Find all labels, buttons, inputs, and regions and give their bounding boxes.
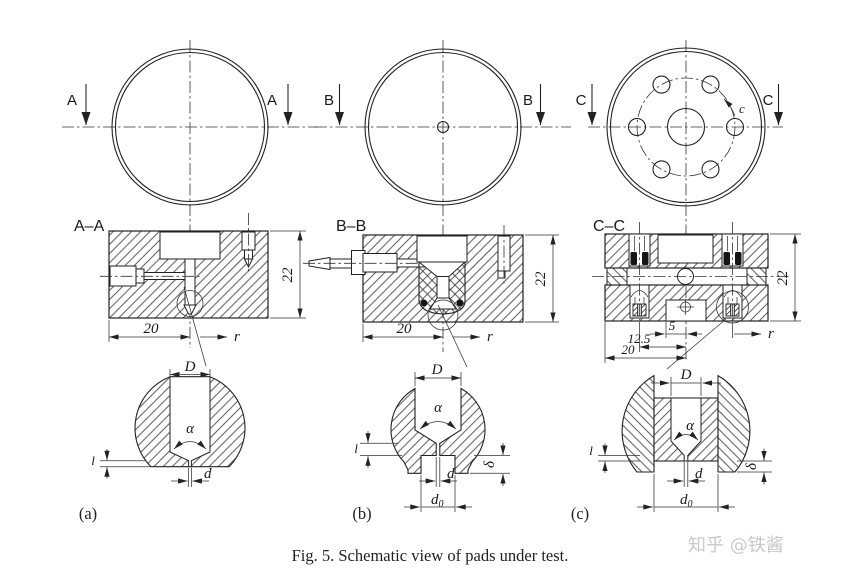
figure-schematic-pads: A A B B c C C A–A [0, 0, 842, 576]
section-marker-label: B [523, 92, 533, 109]
section-marker-b-left: B [324, 84, 340, 125]
section-marker-c-left: C [576, 84, 592, 125]
radial-label: r [768, 326, 774, 342]
section-title: A–A [74, 218, 105, 235]
dimension-D-c: D [651, 367, 721, 396]
dim-hole: d [695, 466, 703, 482]
radial-axis-c: r [733, 322, 775, 342]
dim-bore: D [184, 359, 196, 375]
top-pocket [160, 232, 220, 259]
subfigure-label: (a) [79, 504, 97, 523]
dim-width: 20 [622, 342, 636, 357]
dimension-D-b: D [415, 362, 461, 386]
subfigure-label: (b) [352, 504, 371, 523]
dim-height: 22 [533, 271, 549, 287]
dimension-d-b: d [419, 457, 457, 487]
dimension-height-c: 22 [770, 234, 801, 321]
dim-hole: d [447, 466, 455, 482]
section-marker-label: C [763, 92, 774, 109]
o-ring-seal [724, 252, 731, 265]
section-title: B–B [336, 218, 366, 235]
radial-label: r [487, 329, 493, 345]
dim-hole: d [204, 466, 212, 482]
dim-angle: α [186, 421, 195, 437]
dim-bore: D [431, 362, 443, 378]
detail-leader [667, 319, 726, 369]
dim-angle: α [686, 418, 695, 434]
dim-depth: δ [744, 462, 760, 470]
rotation-direction: c [724, 99, 745, 116]
dimension-d-c: d [667, 462, 705, 487]
o-ring-seal [421, 300, 428, 307]
watermark: 知乎 @铁酱 [688, 535, 784, 556]
figure-canvas: A A B B c C C A–A [0, 0, 842, 576]
dimension-height-b: 22 [525, 235, 559, 322]
dim-angle: α [434, 400, 443, 416]
section-view-c: C–C [592, 218, 801, 369]
o-ring-seal [735, 252, 742, 265]
detail-view-c: D α l δ d d 0 (c) [571, 367, 772, 523]
section-marker-a-left: A [67, 84, 86, 125]
detail-view-b: D α l δ d d 0 (b) [352, 362, 510, 523]
o-ring-seal [642, 252, 649, 265]
dimension-alpha-b: α [420, 400, 456, 429]
detail-view-a: D α l d (a) [79, 359, 245, 523]
dim-land: l [354, 441, 358, 456]
section-marker-label: A [267, 92, 277, 109]
section-marker-b-right: B [523, 84, 541, 125]
subfigure-label: (c) [571, 504, 589, 523]
dim-height: 22 [280, 267, 296, 283]
section-marker-label: B [324, 92, 334, 109]
section-view-b: B–B 22 20 r [303, 218, 559, 367]
dim-offset-small: 5 [669, 318, 676, 333]
radial-axis-a: r [200, 329, 240, 345]
dimension-d0-b: d 0 [404, 475, 472, 512]
section-marker-a-right: A [267, 84, 288, 125]
dim-height: 22 [775, 270, 791, 286]
top-pocket [658, 235, 713, 263]
dim-land: l [589, 443, 593, 458]
dim-recess-subscript: 0 [439, 499, 444, 510]
top-pocket [417, 236, 467, 262]
dimension-height-a: 22 [270, 231, 306, 318]
o-ring-seal [457, 300, 464, 307]
pad-outer-body-right [718, 376, 750, 472]
dimension-width-a: 20 [109, 320, 190, 342]
supply-channel-vertical [185, 259, 195, 305]
insert-channel [437, 277, 449, 299]
dim-bore: D [680, 367, 692, 383]
pad-detail-body-right [440, 389, 485, 474]
section-title: C–C [593, 218, 625, 235]
figure-caption: Fig. 5. Schematic view of pads under tes… [292, 546, 569, 565]
dim-recess-subscript: 0 [688, 499, 693, 510]
pad-detail-body-left [391, 389, 436, 474]
dim-width: 20 [144, 321, 160, 337]
pad-outer-body-left [622, 376, 654, 472]
section-marker-label: C [576, 92, 587, 109]
rotation-label: c [739, 101, 745, 116]
dimension-d-a: d [171, 466, 212, 487]
o-ring-seal [631, 252, 638, 265]
fitting-thread [363, 254, 397, 273]
radial-axis-b: r [453, 329, 493, 345]
dimension-offset-12-5: 12.5 [628, 322, 686, 352]
dimension-d0-c: d 0 [637, 474, 735, 512]
radial-label: r [234, 329, 240, 345]
dim-width: 20 [397, 321, 413, 337]
section-marker-label: A [67, 92, 77, 109]
dim-depth: δ [482, 460, 498, 468]
dim-land: l [91, 453, 95, 468]
